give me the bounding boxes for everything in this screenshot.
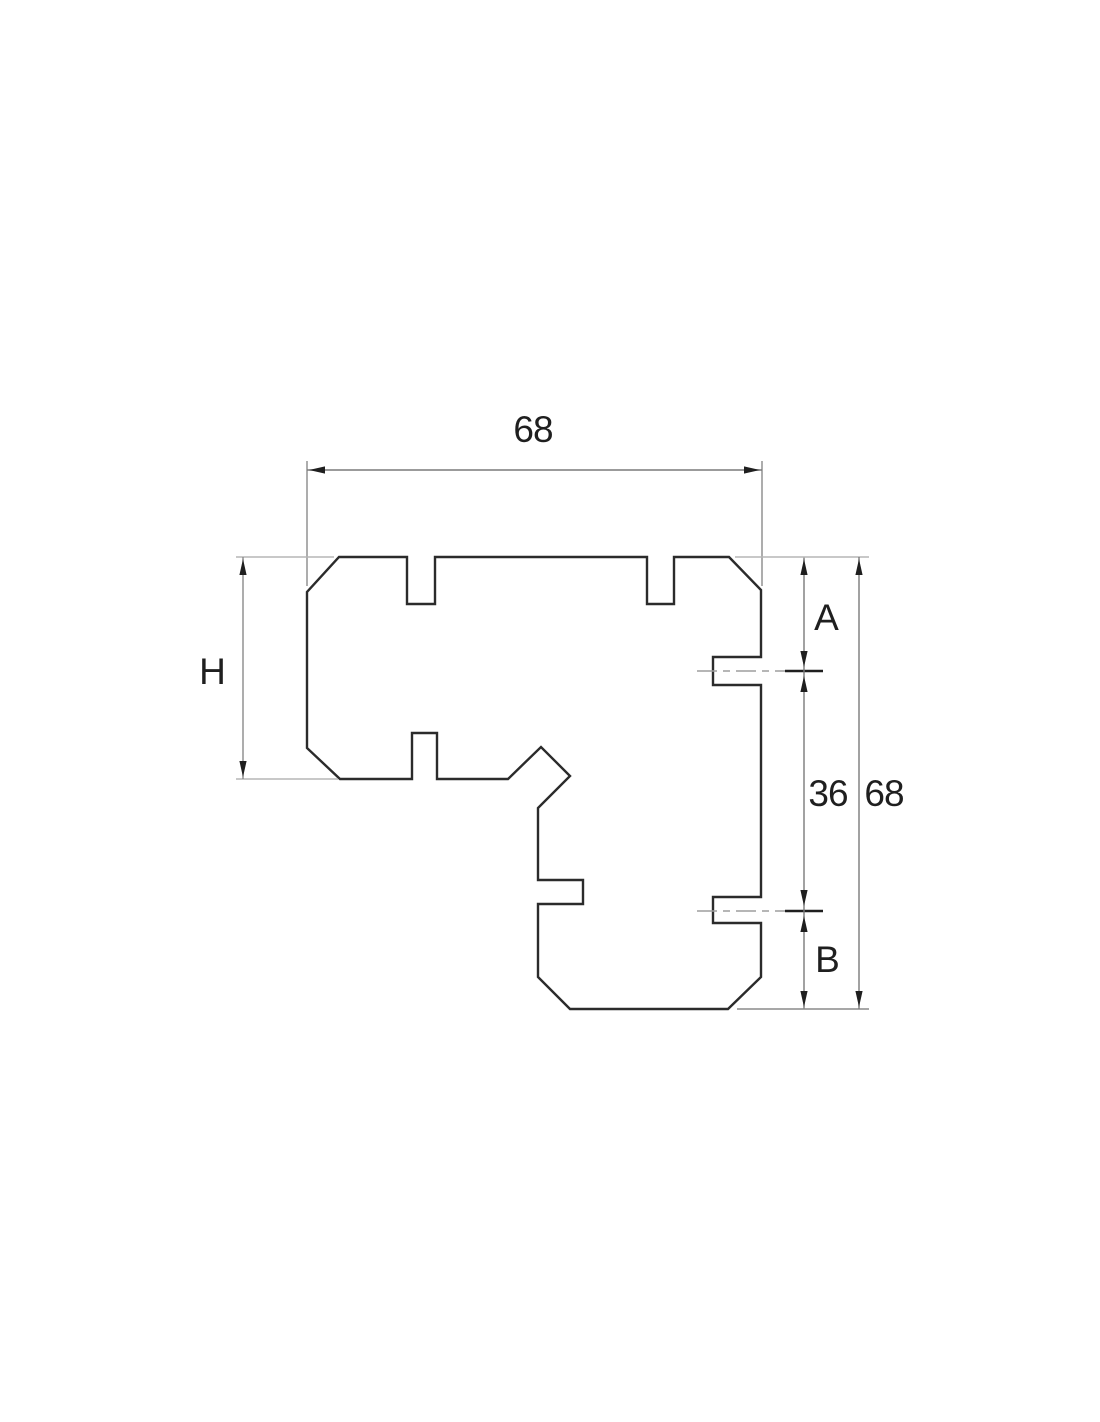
arrowhead-a-bottom-icon <box>800 651 807 667</box>
drawing-page: 68 H A 36 B <box>0 0 1100 1422</box>
arrowhead-36-bottom-icon <box>800 890 807 906</box>
arrowhead-left-icon <box>309 466 325 473</box>
profile-outline <box>307 557 761 1009</box>
label-segment-a: A <box>814 597 839 638</box>
arrowhead-b-top-icon <box>800 916 807 932</box>
arrowhead-b-bottom-icon <box>800 991 807 1007</box>
technical-drawing-canvas: 68 H A 36 B <box>0 0 1100 1422</box>
arrowhead-total-bottom-icon <box>855 991 862 1007</box>
arrowhead-total-top-icon <box>855 559 862 575</box>
dim-top-width: 68 <box>307 409 762 586</box>
profile-outline-path <box>307 557 761 1009</box>
arrowhead-down-icon <box>239 761 246 777</box>
arrowhead-up-icon <box>239 559 246 575</box>
label-segment-36: 36 <box>808 773 847 814</box>
dim-left-height: H <box>199 557 338 779</box>
label-top-width: 68 <box>513 409 552 450</box>
label-left-height: H <box>199 651 225 692</box>
arrowhead-36-top-icon <box>800 676 807 692</box>
arrowhead-right-icon <box>744 466 760 473</box>
dim-right-segments: A 36 B <box>800 557 847 1009</box>
arrowhead-a-top-icon <box>800 559 807 575</box>
label-total-height: 68 <box>864 773 903 814</box>
label-segment-b: B <box>815 939 839 980</box>
